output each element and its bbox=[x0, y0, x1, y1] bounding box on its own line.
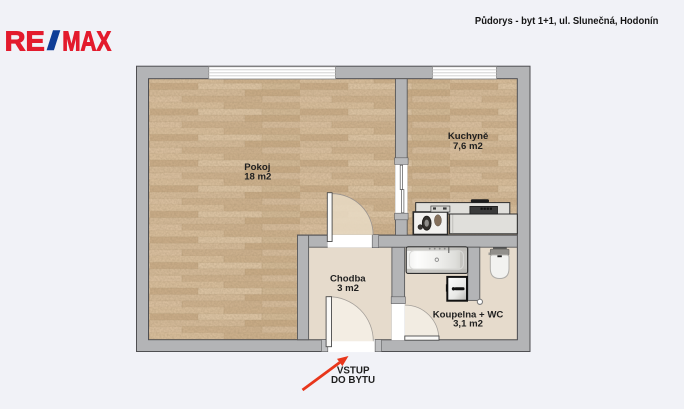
svg-text:3,1 m2: 3,1 m2 bbox=[453, 319, 483, 330]
svg-text:3 m2: 3 m2 bbox=[337, 283, 359, 294]
svg-text:7,6 m2: 7,6 m2 bbox=[453, 141, 483, 152]
svg-text:18 m2: 18 m2 bbox=[244, 172, 271, 183]
svg-text:RE: RE bbox=[5, 25, 45, 56]
svg-text:MAX: MAX bbox=[62, 25, 111, 56]
svg-text:Půdorys - byt 1+1, ul. Slunečn: Půdorys - byt 1+1, ul. Slunečná, Hodonín bbox=[475, 15, 659, 27]
svg-text:DO BYTU: DO BYTU bbox=[331, 375, 375, 386]
